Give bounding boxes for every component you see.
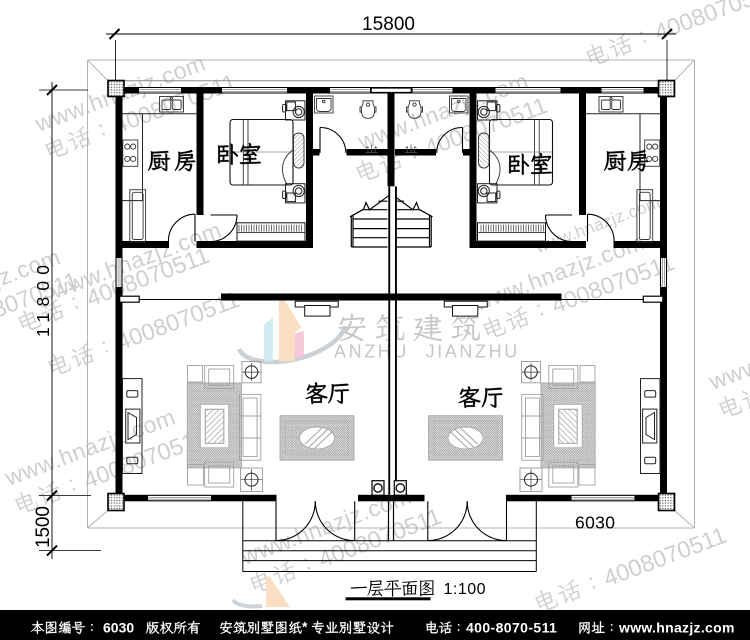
svg-text:400-8070-511: 400-8070-511 [466, 620, 557, 636]
svg-text:6030: 6030 [575, 513, 615, 533]
svg-text:15800: 15800 [362, 14, 415, 35]
svg-text:1:100: 1:100 [444, 581, 487, 598]
svg-text:6030: 6030 [103, 620, 134, 636]
svg-text:1500: 1500 [33, 506, 54, 548]
svg-text:www.hnazjz.com: www.hnazjz.com [618, 620, 735, 636]
svg-text:11800: 11800 [33, 265, 53, 337]
svg-text:ANZHU JIANZHU: ANZHU JIANZHU [334, 342, 520, 362]
svg-text:*: * [302, 619, 308, 635]
